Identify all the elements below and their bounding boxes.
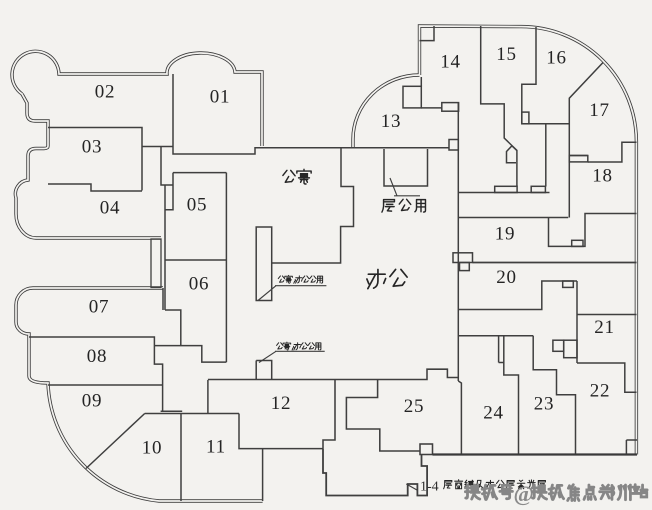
svg-text:08: 08	[87, 346, 108, 367]
svg-text:@: @	[514, 481, 534, 506]
svg-text:09: 09	[82, 391, 103, 412]
svg-text:07: 07	[89, 297, 110, 318]
svg-text:14: 14	[440, 52, 461, 73]
svg-text:25: 25	[404, 396, 425, 417]
svg-text:22: 22	[590, 381, 611, 402]
svg-text:05: 05	[187, 195, 208, 216]
svg-text:17: 17	[589, 100, 610, 121]
svg-text:15: 15	[496, 44, 517, 65]
svg-text:21: 21	[594, 317, 615, 338]
svg-text:10: 10	[142, 438, 163, 459]
svg-text:18: 18	[592, 166, 613, 187]
svg-text:24: 24	[483, 403, 504, 424]
svg-text:13: 13	[381, 111, 402, 132]
svg-text:11: 11	[206, 437, 226, 458]
svg-text:23: 23	[534, 394, 555, 415]
svg-text:16: 16	[546, 48, 567, 69]
svg-text:20: 20	[496, 267, 517, 288]
svg-text:03: 03	[82, 137, 103, 158]
svg-text:06: 06	[189, 274, 210, 295]
svg-text:04: 04	[100, 198, 121, 219]
svg-text:19: 19	[495, 224, 516, 245]
svg-text:01: 01	[210, 87, 231, 108]
svg-text:12: 12	[271, 393, 292, 414]
svg-text:02: 02	[95, 82, 116, 103]
svg-text:1-4: 1-4	[420, 480, 439, 495]
